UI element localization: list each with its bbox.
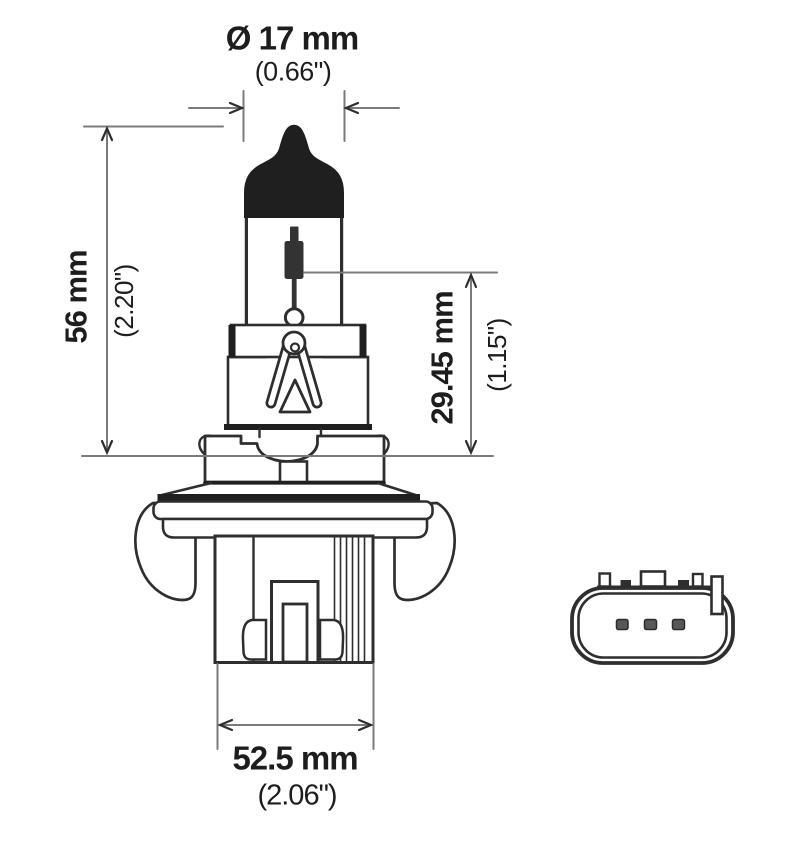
key-tab-center-icon bbox=[641, 572, 665, 587]
connector-pins-icon bbox=[617, 620, 685, 630]
dim-label-diameter-mm: Ø 17 mm bbox=[226, 22, 358, 55]
dim-base-width bbox=[218, 664, 374, 749]
dim-label-overall-mm: 56 mm bbox=[61, 250, 92, 343]
dim-label-filament-inch: (1.15") bbox=[484, 318, 510, 392]
clip-right-icon bbox=[320, 620, 343, 660]
base-flange bbox=[160, 436, 417, 496]
bulb-base bbox=[224, 325, 372, 437]
dim-label-base-width-mm: 52.5 mm bbox=[232, 742, 357, 775]
clip-left-icon bbox=[243, 620, 266, 660]
key-tab-small-icon bbox=[693, 574, 703, 587]
connector-housing bbox=[215, 536, 373, 663]
key-tab-left-icon bbox=[600, 574, 611, 587]
dim-label-filament-mm: 29.45 mm bbox=[427, 291, 458, 424]
dim-label-base-width-inch: (2.06") bbox=[257, 782, 336, 811]
dim-label-diameter-inch: (0.66") bbox=[255, 59, 332, 86]
base-collar bbox=[154, 494, 433, 538]
key-tab-right-icon bbox=[712, 577, 723, 615]
bulb-side-view bbox=[135, 126, 454, 663]
bulb-black-tip-icon bbox=[245, 126, 343, 217]
connector-end-view bbox=[572, 572, 733, 664]
plug-inner-icon bbox=[283, 604, 307, 662]
dim-label-overall-inch: (2.20") bbox=[111, 264, 137, 338]
bulb-diagram-linework bbox=[0, 0, 800, 843]
filament-icon bbox=[285, 227, 304, 327]
technical-drawing-canvas: Ø 17 mm (0.66") 56 mm (2.20") 29.45 mm (… bbox=[0, 0, 800, 843]
